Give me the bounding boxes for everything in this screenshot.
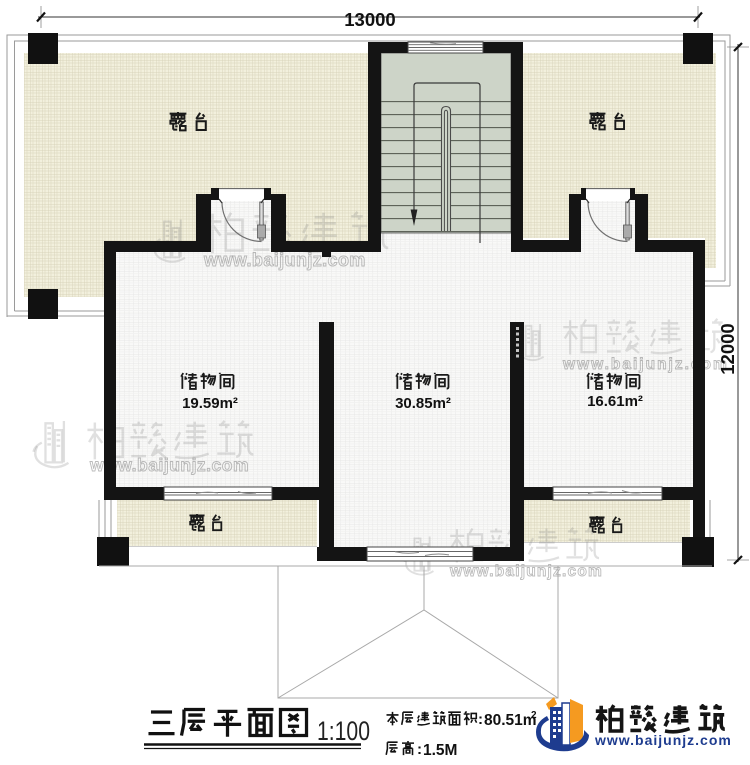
svg-text:2: 2	[531, 710, 537, 721]
svg-text::: :	[478, 711, 483, 728]
svg-text:30.85m²: 30.85m²	[395, 395, 451, 412]
svg-text:16.61m²: 16.61m²	[587, 393, 643, 410]
svg-text:13000: 13000	[344, 9, 395, 30]
svg-text:www.baijunjz.com: www.baijunjz.com	[203, 250, 366, 270]
svg-text:19.59m²: 19.59m²	[182, 395, 238, 412]
svg-text::: :	[417, 741, 422, 758]
svg-text:www.baijunjz.com: www.baijunjz.com	[594, 732, 732, 748]
svg-text:1.5M: 1.5M	[423, 742, 457, 759]
svg-text:12000: 12000	[717, 323, 738, 374]
svg-text:80.51m: 80.51m	[484, 712, 537, 729]
svg-text:1:100: 1:100	[317, 716, 370, 746]
